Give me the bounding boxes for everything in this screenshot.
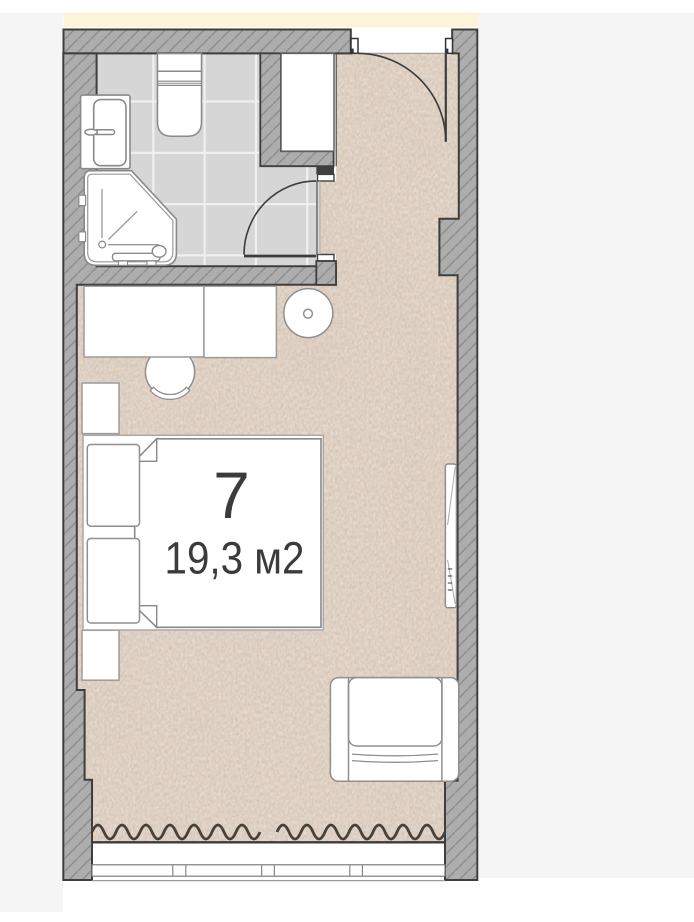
svg-text:7: 7: [213, 458, 250, 532]
svg-text:19,3 м2: 19,3 м2: [165, 533, 305, 584]
